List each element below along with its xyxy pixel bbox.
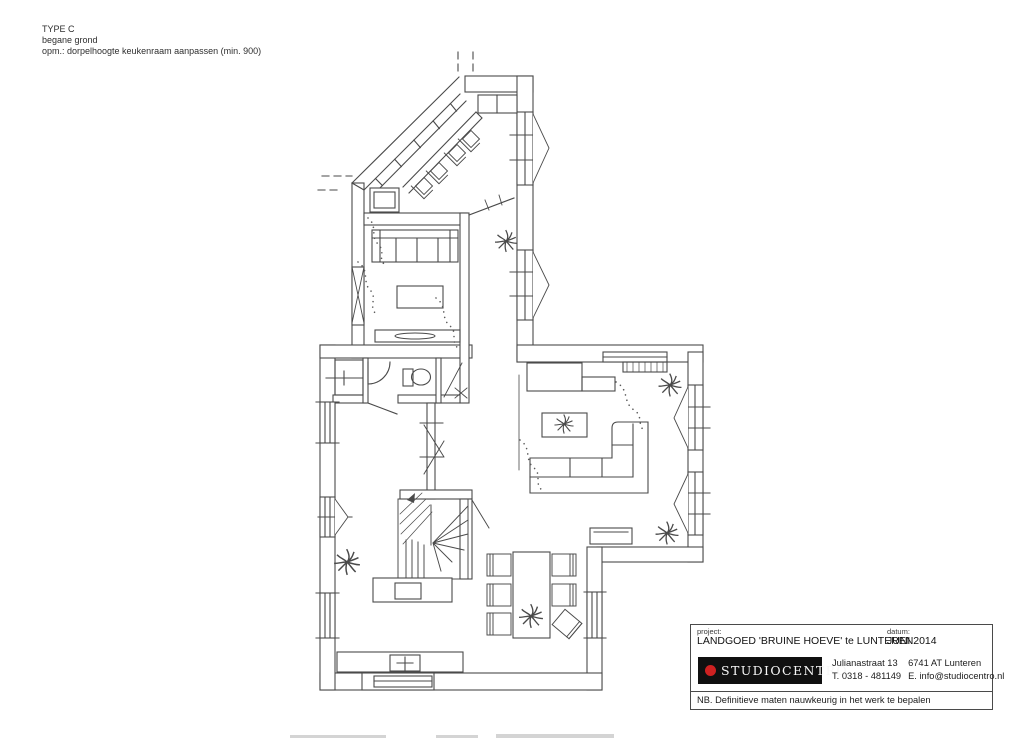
title-block: project: LANDGOED 'BRUINE HOEVE' te LUNT… [690, 624, 993, 710]
address-email: E. info@studiocentro.nl [908, 670, 1004, 683]
project-value: LANDGOED 'BRUINE HOEVE' te LUNTEREN [697, 635, 913, 647]
toilet-door-swing [368, 403, 397, 414]
title-block-divider [691, 691, 992, 692]
address-postal: 6741 AT Lunteren [908, 657, 1004, 670]
address-phone: T. 0318 - 481149 [832, 670, 901, 683]
dining-chairs [487, 554, 582, 639]
stair-cabinet [373, 578, 452, 602]
bench [590, 528, 632, 544]
dashed-lines [318, 52, 473, 190]
corner-sofa [530, 422, 648, 493]
sideboard [337, 652, 463, 672]
door-swing [368, 362, 390, 384]
kitchen-counter [370, 95, 517, 212]
plants [335, 231, 681, 628]
logo-dot-icon [705, 665, 716, 676]
dining-chair-icon [552, 609, 582, 638]
studiocentro-logo: STUDIOCENTRO [698, 657, 822, 684]
wc [403, 369, 431, 386]
address-col-2: 6741 AT Lunteren E. info@studiocentro.nl [908, 657, 1004, 683]
bar-stools [411, 128, 481, 198]
drawing-sheet: TYPE C begane grond opm.: dorpelhoogte k… [0, 0, 1024, 739]
conservatory-glazing [352, 77, 466, 197]
footer-note: NB. Definitieve maten nauwkeurig in het … [697, 695, 931, 705]
address-street: Julianastraat 13 [832, 657, 901, 670]
coffee-table [397, 286, 443, 308]
date-value: JUNI 2014 [887, 635, 937, 647]
toilet [326, 360, 467, 414]
logo-text: STUDIOCENTRO [721, 663, 848, 678]
wall-cabinets [527, 363, 615, 391]
address-block: Julianastraat 13 T. 0318 - 481149 6741 A… [832, 657, 1004, 683]
entrance-door [469, 195, 514, 215]
tv-sideboard [375, 330, 460, 342]
stair-door-swing [472, 500, 489, 528]
radiator [623, 362, 667, 372]
dining-table [513, 552, 550, 638]
lounge-sofa [372, 230, 458, 262]
address-col-1: Julianastraat 13 T. 0318 - 481149 [832, 657, 901, 683]
winder-staircase [398, 493, 489, 579]
